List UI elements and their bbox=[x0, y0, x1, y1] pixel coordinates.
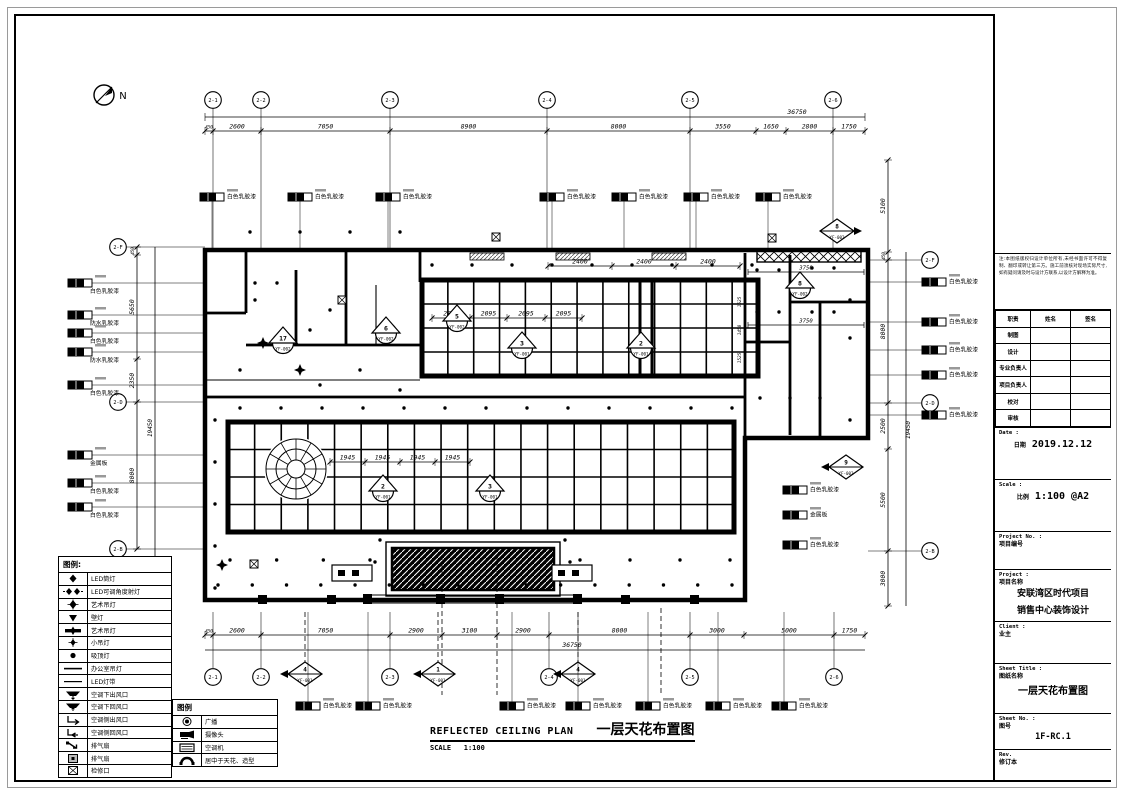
downlight-dot bbox=[398, 230, 401, 233]
grid-bubble-label: 2-1 bbox=[208, 98, 217, 104]
office-pendant-icon bbox=[62, 663, 84, 674]
dim-label: 2095 bbox=[556, 310, 572, 318]
detail-marker-number: 3 bbox=[520, 340, 524, 348]
keynote: 白色乳胶漆 bbox=[783, 537, 839, 549]
grid-bubble-label: 2-B bbox=[113, 547, 122, 553]
downlight-dot bbox=[568, 560, 571, 563]
downlight-dot bbox=[318, 383, 321, 386]
art-pendant-bar-icon bbox=[62, 625, 84, 636]
scale-value-tb: 1:100 @A2 bbox=[1035, 491, 1089, 502]
section-marker-number: 8 bbox=[835, 224, 839, 231]
downlight-dot bbox=[590, 263, 593, 266]
keynote-code bbox=[711, 189, 722, 192]
dim-label: 2900 bbox=[408, 627, 424, 635]
art-pendant-icon bbox=[62, 599, 84, 610]
rev-zh: 修订本 bbox=[999, 759, 1107, 766]
overall-dim: 36750 bbox=[561, 641, 581, 649]
downlight-dot bbox=[470, 263, 473, 266]
date-value: 2019.12.12 bbox=[1032, 439, 1092, 450]
keynote-code bbox=[949, 274, 960, 277]
keynote-code bbox=[949, 314, 960, 317]
keynote-label: 白色乳胶漆 bbox=[90, 487, 119, 495]
sheet-title-zh: 图纸名称 bbox=[999, 673, 1107, 680]
downlight-dot bbox=[228, 558, 231, 561]
sign-table-blank bbox=[1071, 377, 1111, 394]
dim-label: 8000 bbox=[612, 627, 628, 635]
sign-table-blank bbox=[1071, 344, 1111, 361]
keynote-label: 白色乳胶漆 bbox=[711, 193, 740, 201]
exhaust-fan-2-icon bbox=[62, 753, 84, 764]
keynote-label: 白色乳胶漆 bbox=[639, 193, 668, 201]
downlight-dot bbox=[670, 263, 673, 266]
downlight-dot bbox=[710, 263, 713, 266]
dim-label: 5500 bbox=[879, 492, 887, 508]
column bbox=[690, 595, 699, 604]
ac-down-supply-icon bbox=[62, 689, 84, 700]
led-adjustable-icon bbox=[59, 586, 88, 598]
keynote: 白色乳胶漆 bbox=[868, 274, 978, 286]
legend-item: 排气扇 bbox=[59, 739, 171, 752]
detail-marker-code: YF-002 bbox=[275, 347, 291, 352]
keynote: 白色乳胶漆 bbox=[636, 612, 692, 710]
downlight-dot bbox=[689, 406, 692, 409]
dim-label: 5100 bbox=[879, 198, 887, 214]
dim-label: 3550 bbox=[714, 123, 731, 131]
keynote-label: 白色乳胶漆 bbox=[90, 287, 119, 295]
grid-bubble-label: 2-3 bbox=[385, 675, 394, 681]
keynote-code bbox=[949, 342, 960, 345]
dim-label: 7050 bbox=[318, 627, 334, 635]
project-no-area: Project No. : 项目编号 bbox=[995, 532, 1111, 570]
keynote: 白色乳胶漆 bbox=[612, 189, 668, 248]
legend-item: 广播 bbox=[173, 716, 277, 729]
dim-label: 1750 bbox=[842, 627, 858, 635]
keynote-code bbox=[810, 507, 821, 510]
led-strip-icon bbox=[62, 676, 84, 687]
keynote: 白色乳胶漆 bbox=[756, 189, 812, 248]
sign-table-blank bbox=[1071, 410, 1111, 427]
scale-area: Scale : 比例 1:100 @A2 bbox=[995, 480, 1111, 532]
downlight-dot bbox=[251, 583, 254, 586]
downlight-dot bbox=[402, 406, 405, 409]
keynote-label: 白色乳胶漆 bbox=[90, 389, 119, 397]
keynote-code bbox=[810, 482, 821, 485]
sign-table-blank bbox=[1031, 393, 1071, 410]
keynote-code bbox=[95, 475, 106, 478]
downlight-dot bbox=[578, 558, 581, 561]
legend-item: 空调侧回风口 bbox=[59, 727, 171, 740]
dim-label: 5650 bbox=[128, 299, 136, 315]
sign-table-role: 校对 bbox=[996, 393, 1031, 410]
dim-label: 1450 bbox=[737, 324, 743, 335]
dim-label: 1945 bbox=[410, 454, 426, 462]
downlight-dot bbox=[628, 583, 631, 586]
downlight-dot bbox=[696, 583, 699, 586]
project-name-1: 安联湾区时代项目 bbox=[999, 586, 1107, 603]
client-zh: 业主 bbox=[999, 631, 1107, 638]
downlight-dot bbox=[456, 583, 459, 586]
keynote: 白色乳胶漆 bbox=[68, 275, 205, 295]
dim-label: 1945 bbox=[340, 454, 356, 462]
grid-bubble-label: 2-B bbox=[925, 549, 934, 555]
drawing-title: REFLECTED CEILING PLAN 一层天花布置图 SCALE 1:1… bbox=[430, 719, 695, 752]
keynote: 防水乳胶漆 bbox=[68, 307, 205, 327]
keynote-label: 白色乳胶漆 bbox=[315, 193, 344, 201]
dim-label: 450 bbox=[205, 125, 213, 130]
legend-item-label: 艺术吊灯 bbox=[88, 600, 116, 609]
dim-label: 1525 bbox=[737, 352, 743, 363]
client-label: Client : bbox=[999, 624, 1107, 631]
downlight-dot bbox=[788, 396, 791, 399]
downlight-dot bbox=[832, 310, 835, 313]
mullion bbox=[573, 594, 582, 604]
overall-dim: 36750 bbox=[786, 108, 806, 116]
overall-dim: 19450 bbox=[905, 421, 912, 439]
keynote-code bbox=[783, 189, 794, 192]
detail-marker-number: 6 bbox=[384, 325, 388, 333]
keynote-code bbox=[323, 698, 334, 701]
keynote-code bbox=[315, 189, 326, 192]
keynote-code bbox=[95, 325, 106, 328]
section-marker-code: YF-001 bbox=[297, 678, 313, 683]
display-box-cell bbox=[572, 570, 579, 576]
legend-item-label: 排气扇 bbox=[88, 754, 110, 763]
dim-label: 1945 bbox=[375, 454, 391, 462]
column bbox=[327, 595, 336, 604]
keynote-label: 白色乳胶漆 bbox=[949, 411, 978, 419]
grid-bubble-label: 2-5 bbox=[685, 98, 694, 104]
sign-table-role: 专业负责人 bbox=[996, 360, 1031, 377]
detail-marker: 2YF-001 bbox=[369, 475, 397, 502]
downlight-dot bbox=[353, 583, 356, 586]
ac-unit-icon bbox=[176, 742, 198, 753]
keynote: 白色乳胶漆 bbox=[68, 325, 205, 345]
detail-marker-number: 2 bbox=[639, 340, 643, 348]
notes-area: 注:本图纸版权归设计单位所有,未经书面许可不得复制、翻印或转让第三方。施工前须核… bbox=[995, 254, 1111, 310]
coffer-grid bbox=[422, 280, 758, 376]
downlight-dot bbox=[832, 266, 835, 269]
legend-item-label: LED筒灯 bbox=[88, 574, 116, 583]
downlight-dot bbox=[213, 502, 216, 505]
section-marker-arrow bbox=[821, 463, 829, 471]
keynote: 白色乳胶漆 bbox=[376, 189, 432, 248]
keynote: 白色乳胶漆 bbox=[540, 189, 596, 248]
dim-label: 2500 bbox=[879, 418, 887, 434]
downlight-dot bbox=[728, 558, 731, 561]
signature-table: 职责姓名签名制图 设计 专业负责人 项目负责人 校对 审核 bbox=[995, 310, 1111, 427]
project-name-2: 销售中心装饰设计 bbox=[999, 603, 1107, 620]
keynote-label: 白色乳胶漆 bbox=[949, 371, 978, 379]
north-needle bbox=[96, 87, 112, 103]
legend-item-label: 空调侧回风口 bbox=[88, 728, 128, 737]
mullion bbox=[363, 594, 372, 604]
legend-item: 摄像头 bbox=[173, 729, 277, 742]
keynote: 白色乳胶漆 bbox=[684, 189, 740, 248]
sign-table-blank bbox=[1031, 410, 1071, 427]
pendant-star bbox=[294, 364, 306, 376]
sign-table-blank bbox=[1071, 393, 1111, 410]
display-box-cell bbox=[352, 570, 359, 576]
ac-down-return-icon bbox=[62, 701, 84, 712]
downlight-dot bbox=[238, 406, 241, 409]
legend-item: 艺术吊灯 bbox=[59, 599, 171, 612]
downlight-dot bbox=[678, 558, 681, 561]
keynote: 白色乳胶漆 bbox=[356, 612, 412, 710]
legend-item: 空调侧出风口 bbox=[59, 714, 171, 727]
legend-item-label: 排气扇 bbox=[88, 741, 110, 750]
keynote-label: 白色乳胶漆 bbox=[567, 193, 596, 201]
keynote-code bbox=[733, 698, 744, 701]
legend-item-label: 摄像头 bbox=[202, 730, 224, 739]
downlight-dot bbox=[322, 558, 325, 561]
exhaust-fan-icon bbox=[62, 740, 84, 751]
downlight-dot bbox=[443, 406, 446, 409]
detail-marker: 4YF-001 bbox=[553, 662, 595, 686]
client-area: Client : 业主 bbox=[995, 622, 1111, 664]
grid-bubble-label: 2-5 bbox=[685, 675, 694, 681]
downlight-dot bbox=[818, 396, 821, 399]
keynote: 白色乳胶漆 bbox=[783, 482, 839, 494]
downlight-dot bbox=[730, 406, 733, 409]
ac-down-return-icon bbox=[59, 701, 88, 713]
legend-title: 图例: bbox=[59, 557, 171, 573]
logo-area bbox=[995, 14, 1111, 254]
downlight-dot bbox=[628, 558, 631, 561]
keynote-label: 白色乳胶漆 bbox=[663, 702, 692, 710]
sign-table-blank bbox=[1071, 360, 1111, 377]
keynote-code bbox=[403, 189, 414, 192]
scale-label-zh: 比例 bbox=[1017, 494, 1029, 501]
rev-label: Rev. bbox=[999, 752, 1107, 759]
downlight-dot bbox=[348, 230, 351, 233]
downlight-dot bbox=[510, 263, 513, 266]
keynote-label: 金属板 bbox=[810, 511, 828, 519]
dim-label: 2095 bbox=[481, 310, 497, 318]
ac-side-supply-icon bbox=[59, 714, 88, 726]
legend-item-label: 空调下回风口 bbox=[88, 702, 128, 711]
detail-marker: 9YF-002 bbox=[821, 455, 863, 479]
small-pendant-icon bbox=[59, 637, 88, 649]
downlight-dot bbox=[213, 418, 216, 421]
section-marker-code: YF-001 bbox=[430, 678, 446, 683]
legend-item-label: 空调机 bbox=[202, 743, 224, 752]
keynote-code bbox=[227, 189, 238, 192]
sheet-title-area: Sheet Title : 图纸名称 一层天花布置图 bbox=[995, 664, 1111, 714]
sign-table-header: 签名 bbox=[1071, 311, 1111, 328]
sign-table-role: 制图 bbox=[996, 327, 1031, 344]
dim-label: 8000 bbox=[879, 324, 887, 340]
legend-item: LED灯带 bbox=[59, 675, 171, 688]
detail-marker-code: YF-001 bbox=[514, 352, 530, 357]
section-marker-arrow bbox=[854, 227, 862, 235]
detail-marker-number: 2 bbox=[381, 483, 385, 491]
downlight-dot bbox=[750, 263, 753, 266]
sign-table-blank bbox=[1071, 327, 1111, 344]
section-marker-number: 1 bbox=[436, 667, 440, 674]
led-adjustable-icon bbox=[62, 586, 84, 597]
detail-marker-number: 17 bbox=[279, 335, 287, 343]
legend-item-label: LED可调角度射灯 bbox=[88, 587, 140, 596]
dim-label: 3000 bbox=[708, 627, 725, 635]
pendant-star bbox=[257, 337, 269, 349]
camera-icon bbox=[176, 729, 198, 740]
sign-table-blank bbox=[1031, 360, 1071, 377]
wall-lamp-icon bbox=[59, 611, 88, 623]
keynote-label: 白色乳胶漆 bbox=[323, 702, 352, 710]
grid-bubble-label: 2-F bbox=[925, 258, 934, 264]
legend2-title: 图例 bbox=[173, 700, 277, 716]
keynote-label: 防水乳胶漆 bbox=[90, 356, 119, 364]
ac-side-supply-icon bbox=[62, 714, 84, 725]
downlight-dot bbox=[319, 583, 322, 586]
legend-lighting: 图例: LED筒灯LED可调角度射灯艺术吊灯壁灯艺术吊灯小吊灯吸顶灯办公室吊灯L… bbox=[58, 556, 172, 778]
section-marker-arrow bbox=[413, 670, 421, 678]
dim-label: 1525 bbox=[737, 296, 743, 307]
keynote-code bbox=[663, 698, 674, 701]
dim-label: 2095 bbox=[518, 310, 534, 318]
downlight-dot bbox=[213, 544, 216, 547]
legend-item: 空调机 bbox=[173, 742, 277, 755]
keynote-code bbox=[95, 447, 106, 450]
scale-label: SCALE bbox=[430, 744, 451, 752]
sign-table-role: 审核 bbox=[996, 410, 1031, 427]
keynote-label: 白色乳胶漆 bbox=[227, 193, 256, 201]
downlight-dot bbox=[320, 406, 323, 409]
legend-item: 吸顶灯 bbox=[59, 650, 171, 663]
legend-item: 空调下出风口 bbox=[59, 688, 171, 701]
keynote-code bbox=[95, 499, 106, 502]
detail-marker-number: 8 bbox=[798, 280, 802, 288]
sheet-no-label: Sheet No. : bbox=[999, 716, 1107, 723]
downlight-dot bbox=[248, 230, 251, 233]
ceiling-lamp-icon bbox=[62, 650, 84, 661]
downlight-dot bbox=[373, 560, 376, 563]
detail-marker-code: YF-001 bbox=[482, 495, 498, 500]
legend-item-label: 居中于天花、造型 bbox=[202, 756, 255, 765]
downlight-dot bbox=[388, 583, 391, 586]
keynote-code bbox=[949, 367, 960, 370]
detail-marker: 8YF-002 bbox=[820, 219, 862, 243]
legend-item: 检修口 bbox=[59, 765, 171, 777]
grid-bubble-label: 2-D bbox=[113, 400, 122, 406]
dim-label: 450 bbox=[881, 252, 886, 260]
dim-label: 8900 bbox=[461, 123, 477, 131]
legend-item-label: 吸顶灯 bbox=[88, 651, 110, 660]
date-label-en: Date : bbox=[999, 430, 1107, 437]
keynote: 金属板 bbox=[783, 507, 828, 519]
keynote-code bbox=[799, 698, 810, 701]
sheet-no-zh: 图号 bbox=[999, 723, 1107, 730]
handset-icon bbox=[173, 754, 202, 766]
keynote: 金属板 bbox=[68, 447, 205, 467]
dim-label: 2800 bbox=[802, 123, 818, 131]
display-box-cell bbox=[558, 570, 565, 576]
keynote-label: 白色乳胶漆 bbox=[90, 337, 119, 345]
downlight-dot bbox=[398, 388, 401, 391]
drawing-title-en: REFLECTED CEILING PLAN bbox=[430, 726, 573, 737]
keynote-code bbox=[639, 189, 650, 192]
downlight-dot bbox=[630, 263, 633, 266]
legend-item-label: 广播 bbox=[202, 717, 217, 726]
detail-marker-code: YF-001 bbox=[375, 495, 391, 500]
downlight-dot bbox=[213, 586, 216, 589]
title-block: 注:本图纸版权归设计单位所有,未经书面许可不得复制、翻印或转让第三方。施工前须核… bbox=[993, 14, 1111, 780]
keynote-code bbox=[810, 537, 821, 540]
keynote-label: 白色乳胶漆 bbox=[810, 541, 839, 549]
dim-label: 450 bbox=[130, 247, 135, 255]
keynote-code bbox=[593, 698, 604, 701]
keynote-label: 金属板 bbox=[90, 459, 108, 467]
dim-label: 7050 bbox=[318, 123, 334, 131]
keynote-code bbox=[95, 307, 106, 310]
downlight-dot bbox=[279, 406, 282, 409]
keynote-label: 白色乳胶漆 bbox=[733, 702, 762, 710]
legend-item-label: LED灯带 bbox=[88, 677, 116, 686]
downlight-dot bbox=[607, 406, 610, 409]
dim-label: 8000 bbox=[611, 123, 627, 131]
louver-strip bbox=[757, 249, 861, 262]
legend-item: 小吊灯 bbox=[59, 637, 171, 650]
speaker-icon bbox=[176, 716, 198, 727]
sign-table-blank bbox=[1031, 344, 1071, 361]
access-panel-icon bbox=[62, 765, 84, 776]
downlight-dot bbox=[662, 583, 665, 586]
downlight-dot bbox=[328, 308, 331, 311]
downlight-dot bbox=[525, 406, 528, 409]
grid-bubble-label: 2-D bbox=[925, 401, 934, 407]
speaker-icon bbox=[173, 716, 202, 728]
sheet-title-value: 一层天花布置图 bbox=[999, 682, 1107, 697]
ac-side-return-icon bbox=[62, 727, 84, 738]
dim-label: 450 bbox=[205, 629, 213, 634]
detail-marker: 1YF-001 bbox=[413, 662, 455, 686]
downlight-dot bbox=[777, 268, 780, 271]
keynote-label: 白色乳胶漆 bbox=[810, 486, 839, 494]
downlight-dot bbox=[275, 558, 278, 561]
sheet-no-value: 1F-RC.1 bbox=[999, 732, 1107, 742]
keynote-label: 白色乳胶漆 bbox=[949, 278, 978, 286]
art-pendant-bar-icon bbox=[59, 624, 88, 636]
downlight-dot bbox=[648, 406, 651, 409]
sheet-no-area: Sheet No. : 图号 1F-RC.1 bbox=[995, 714, 1111, 750]
dim-label: 3100 bbox=[461, 627, 478, 635]
downlight-dot bbox=[213, 460, 216, 463]
downlight-dot bbox=[253, 281, 256, 284]
small-pendant-icon bbox=[62, 637, 84, 648]
keynote: 白色乳胶漆 bbox=[200, 189, 256, 248]
downlight-dot bbox=[593, 583, 596, 586]
exhaust-fan-icon bbox=[59, 739, 88, 751]
exhaust-fan-2-icon bbox=[59, 752, 88, 764]
keynote-code bbox=[949, 407, 960, 410]
keynote-code bbox=[95, 344, 106, 347]
legend-item-label: 艺术吊灯 bbox=[88, 626, 116, 635]
ac-side-return-icon bbox=[59, 727, 88, 739]
led-downlight-icon bbox=[59, 573, 88, 585]
downlight-dot bbox=[848, 336, 851, 339]
legend-item-label: 办公室吊灯 bbox=[88, 664, 122, 673]
keynote: 白色乳胶漆 bbox=[868, 367, 978, 379]
downlight-dot bbox=[848, 298, 851, 301]
downlight-dot bbox=[525, 583, 528, 586]
downlight-dot bbox=[810, 266, 813, 269]
keynote-label: 白色乳胶漆 bbox=[527, 702, 556, 710]
legend-item: 办公室吊灯 bbox=[59, 663, 171, 676]
keynote-label: 白色乳胶漆 bbox=[783, 193, 812, 201]
drawing-sheet: 4502600705089008000355016502800175036750… bbox=[0, 0, 1123, 794]
keynote-label: 白色乳胶漆 bbox=[90, 511, 119, 519]
grid-bubble-label: 2-2 bbox=[256, 675, 265, 681]
